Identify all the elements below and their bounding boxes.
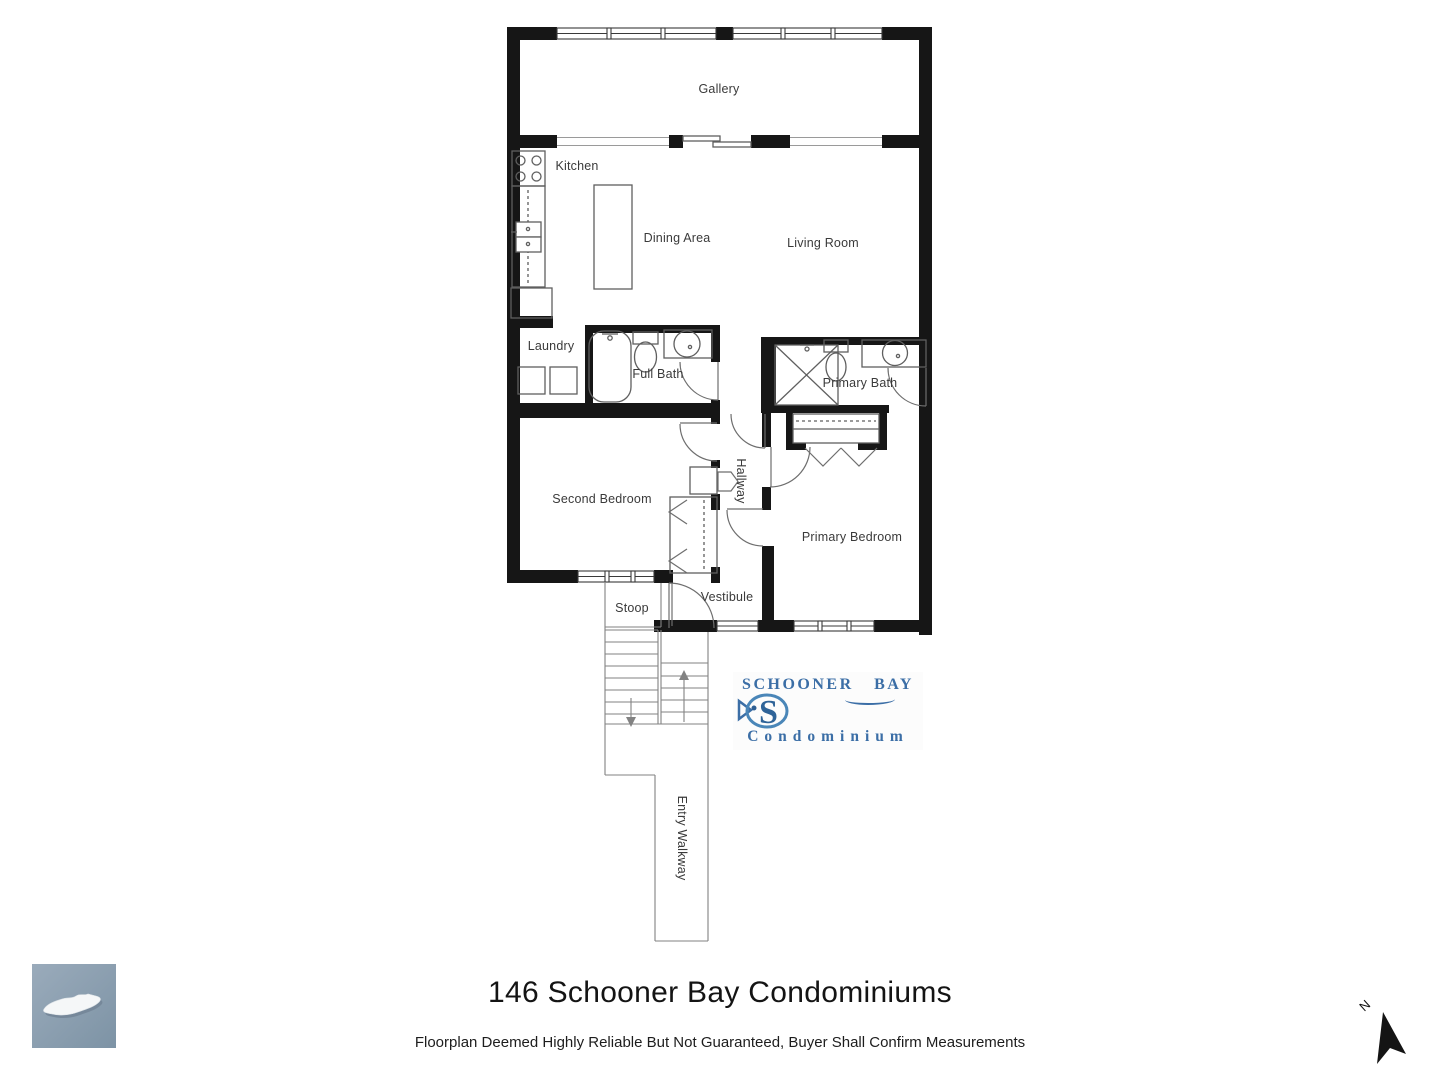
kitchen-sink xyxy=(516,222,541,237)
room-label-full-bath: Full Bath xyxy=(632,367,683,381)
washer xyxy=(518,367,545,394)
room-label-entry-walkway: Entry Walkway xyxy=(675,796,689,881)
sliding-door-panel xyxy=(713,142,751,147)
room-label-stoop: Stoop xyxy=(615,601,649,615)
room-label-vestibule: Vestibule xyxy=(701,590,754,604)
logo-schooner-bay: SCHOONER BAY S Condominium xyxy=(733,672,923,750)
room-label-primary-bedroom: Primary Bedroom xyxy=(802,530,902,544)
primary-bedroom-door xyxy=(770,447,810,487)
room-label-hallway: Hallway xyxy=(734,458,748,503)
svg-text:S: S xyxy=(759,694,778,731)
bathroom-sink xyxy=(664,330,712,358)
room-label-dining-area: Dining Area xyxy=(644,231,711,245)
bathtub xyxy=(589,331,631,402)
room-label-living-room: Living Room xyxy=(787,236,859,250)
room-label-laundry: Laundry xyxy=(528,339,575,353)
full-bath-door xyxy=(680,362,718,400)
laundry-fixtures xyxy=(518,367,577,394)
dining-table xyxy=(594,185,632,289)
disclaimer-text: Floorplan Deemed Highly Reliable But Not… xyxy=(0,1034,1440,1051)
second-bedroom-door xyxy=(680,424,717,461)
logo-text-bottom: Condominium xyxy=(733,728,923,746)
doors xyxy=(669,362,926,628)
room-label-primary-bath: Primary Bath xyxy=(823,376,898,390)
hallway-top-door xyxy=(731,414,765,448)
room-label-kitchen: Kitchen xyxy=(555,159,598,173)
linen-closet xyxy=(690,467,717,494)
logo-swoosh xyxy=(845,694,895,705)
kitchen-fixtures xyxy=(511,151,632,318)
room-label-gallery: Gallery xyxy=(699,82,740,96)
hallway-bottom-door xyxy=(727,510,763,546)
sliding-door-panel xyxy=(683,136,720,141)
floorplan-page: Gallery Kitchen Dining Area Living Room … xyxy=(0,0,1440,1080)
island-thumbnail xyxy=(32,964,116,1048)
floorplan-drawing xyxy=(0,0,1440,1080)
floorplan-title: 146 Schooner Bay Condominiums xyxy=(0,976,1440,1010)
room-label-second-bedroom: Second Bedroom xyxy=(552,492,651,506)
dryer xyxy=(550,367,577,394)
stairs xyxy=(605,583,708,941)
bedroom-closet xyxy=(670,497,717,573)
closets xyxy=(669,467,738,573)
island-shape xyxy=(32,964,116,1048)
